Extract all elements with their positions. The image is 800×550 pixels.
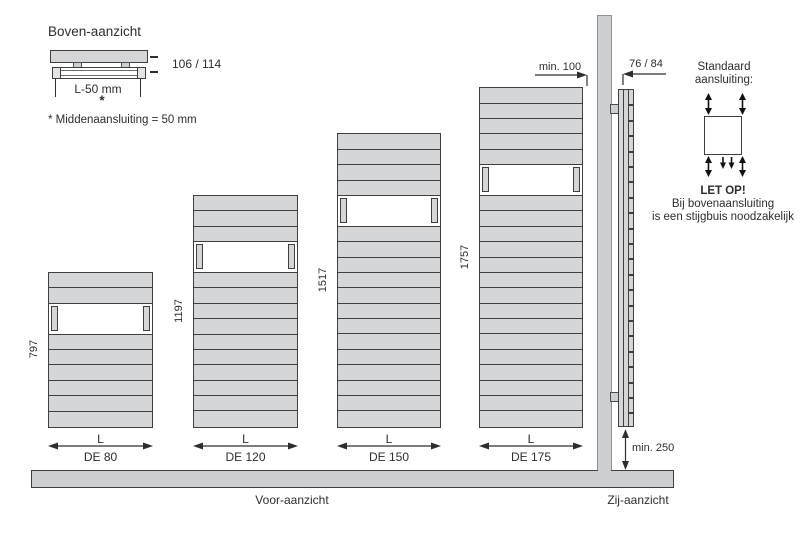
radiator-slat: [338, 365, 440, 380]
radiator-model-label: DE 80: [48, 450, 153, 464]
radiator-slat: [338, 181, 440, 196]
collector-post: [340, 198, 347, 223]
radiator-slat: [194, 381, 297, 396]
radiator-slat: [338, 273, 440, 288]
radiator-slat: [49, 273, 152, 288]
radiator-slat: [194, 335, 297, 350]
collector-post: [573, 167, 580, 192]
radiator-slat: [480, 273, 582, 288]
radiator-slat: [194, 411, 297, 426]
min-250-arrow: [622, 429, 629, 470]
radiator-slat: [338, 411, 440, 426]
radiator-de-80: [48, 272, 153, 428]
radiator-slat: [338, 242, 440, 257]
radiator-slat: [480, 288, 582, 303]
radiator-slat: [49, 365, 152, 380]
towel-opening: [338, 196, 440, 227]
radiator-slat: [480, 411, 582, 426]
radiator-slat: [194, 288, 297, 303]
radiator-slat: [194, 319, 297, 334]
radiator-slat: [338, 304, 440, 319]
towel-opening: [194, 242, 297, 273]
min-100-arrow: [535, 72, 587, 87]
radiator-slat: [338, 165, 440, 180]
flow-arrows: [705, 93, 746, 177]
radiator-slat: [194, 196, 297, 211]
radiator-model-label: DE 175: [479, 450, 583, 464]
collector-post: [196, 244, 203, 269]
radiator-de-150: [337, 133, 441, 428]
radiator-slat: [49, 335, 152, 350]
radiator-slat: [49, 396, 152, 411]
radiator-slat: [338, 134, 440, 149]
radiator-slat: [480, 350, 582, 365]
radiator-slat: [480, 319, 582, 334]
radiator-slat: [480, 242, 582, 257]
radiator-slat: [480, 88, 582, 103]
radiator-slat: [194, 304, 297, 319]
radiator-slat: [480, 334, 582, 349]
radiator-slat: [194, 365, 297, 380]
radiator-model-label: DE 150: [337, 450, 441, 464]
radiator-slat: [49, 412, 152, 427]
radiator-slat: [194, 211, 297, 226]
depth-76-84-arrow: [623, 71, 666, 86]
radiator-slat: [338, 227, 440, 242]
radiator-slat: [338, 319, 440, 334]
radiator-spec-diagram: Boven-aanzicht 106 / 114 L-50 mm * * Mid…: [0, 0, 800, 550]
collector-post: [143, 306, 150, 331]
collector-post: [288, 244, 295, 269]
length-dimension-label: L: [479, 432, 583, 446]
depth-extent-dashes: [150, 57, 158, 72]
radiator-height-label: 797: [28, 327, 40, 371]
radiator-slat: [338, 396, 440, 411]
radiator-height-label: 1517: [317, 258, 329, 302]
radiator-slat: [49, 288, 152, 303]
radiator-slat: [480, 396, 582, 411]
radiator-slat: [480, 365, 582, 380]
radiator-slat: [338, 150, 440, 165]
radiator-slat: [194, 396, 297, 411]
radiator-de-175: [479, 87, 583, 428]
radiator-slat: [480, 119, 582, 134]
length-dimension-label: L: [193, 432, 298, 446]
radiator-slat: [480, 150, 582, 165]
radiator-height-label: 1197: [173, 289, 185, 333]
length-dimension-ticks: [56, 79, 141, 97]
radiator-slat: [480, 304, 582, 319]
radiator-slat: [338, 258, 440, 273]
radiator-de-120: [193, 195, 298, 428]
radiator-height-label: 1757: [459, 235, 471, 279]
towel-opening: [480, 165, 582, 196]
radiator-slat: [480, 381, 582, 396]
length-dimension-label: L: [48, 432, 153, 446]
radiator-slat: [338, 334, 440, 349]
radiator-slat: [194, 227, 297, 242]
collector-post: [482, 167, 489, 192]
radiator-slat: [338, 288, 440, 303]
length-dimension-label: L: [337, 432, 441, 446]
radiator-slat: [480, 134, 582, 149]
radiator-model-label: DE 120: [193, 450, 298, 464]
radiator-slat: [480, 211, 582, 226]
towel-opening: [49, 304, 152, 335]
radiator-slat: [338, 350, 440, 365]
radiator-slat: [194, 350, 297, 365]
radiator-slat: [480, 227, 582, 242]
radiator-slat: [49, 350, 152, 365]
radiator-slat: [480, 196, 582, 211]
radiator-slat: [480, 258, 582, 273]
collector-post: [431, 198, 438, 223]
radiator-slat: [480, 104, 582, 119]
radiator-slat: [338, 381, 440, 396]
radiator-slat: [194, 273, 297, 288]
collector-post: [51, 306, 58, 331]
radiator-slat: [49, 381, 152, 396]
